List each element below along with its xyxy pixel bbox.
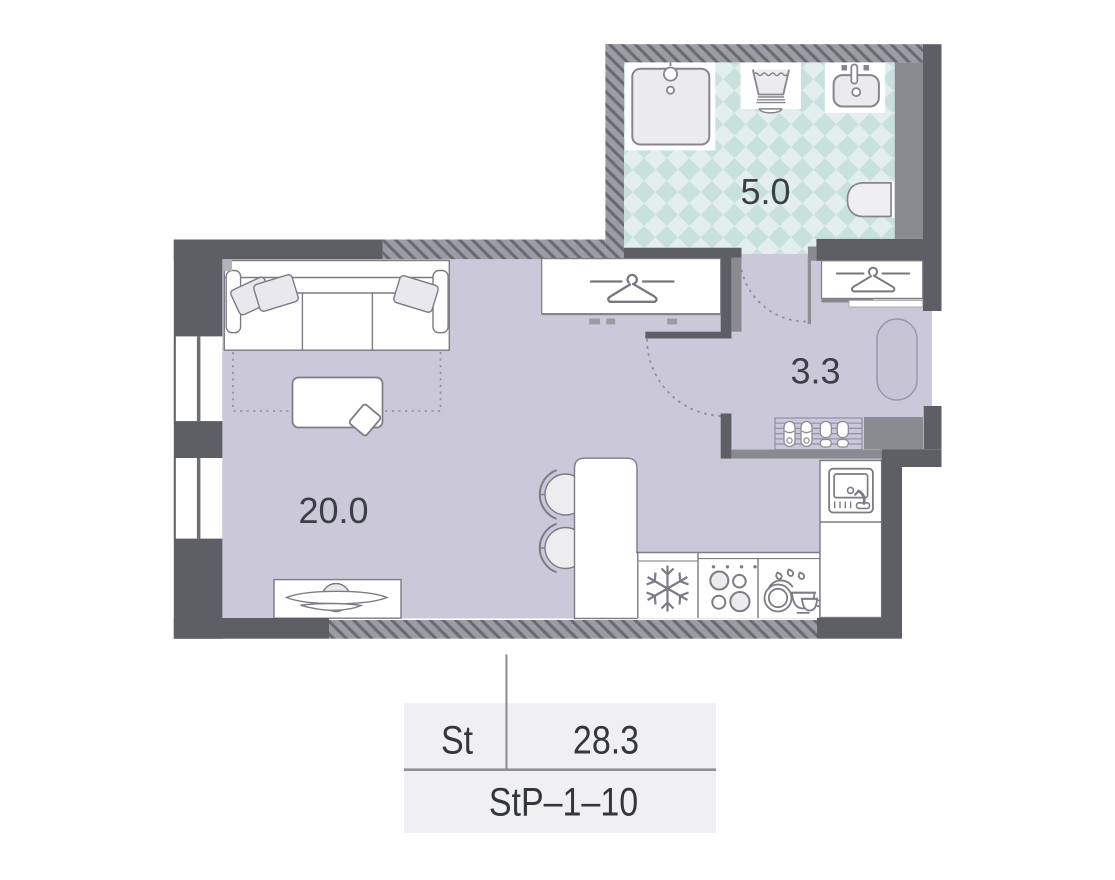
svg-text:3.3: 3.3 (790, 351, 840, 392)
svg-text:St: St (441, 717, 474, 762)
svg-text:28.3: 28.3 (573, 717, 639, 762)
svg-text:StP–1–10: StP–1–10 (489, 779, 638, 824)
svg-text:5.0: 5.0 (740, 171, 790, 212)
svg-text:20.0: 20.0 (298, 490, 368, 531)
